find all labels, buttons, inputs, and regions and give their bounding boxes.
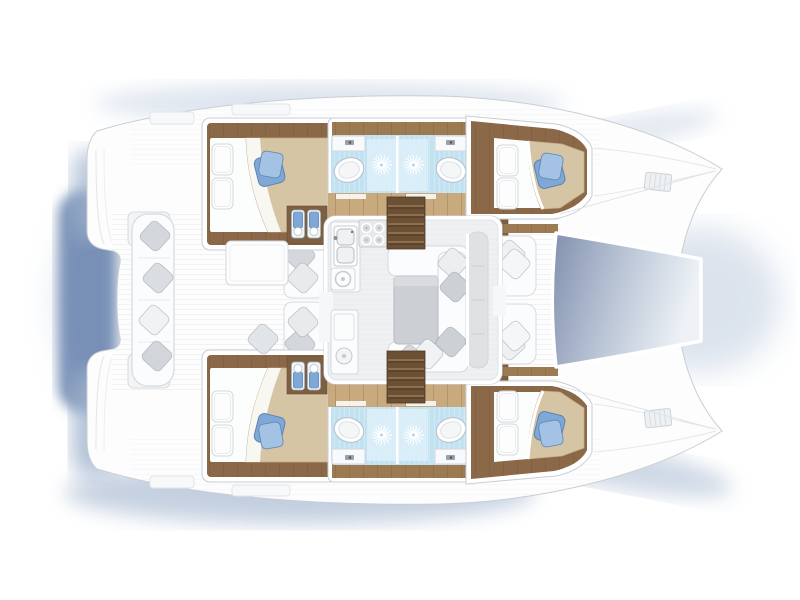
bed-pillow	[497, 145, 518, 176]
bed-pillow	[212, 144, 233, 175]
cockpit-bench	[132, 214, 175, 386]
aft-bathroom-toilets	[287, 206, 327, 244]
double-bed	[494, 138, 584, 209]
bow-trampoline	[552, 233, 701, 367]
floorplan-canvas	[0, 0, 800, 600]
toilet	[292, 210, 305, 238]
salon-forward-door	[493, 286, 506, 316]
bed-pillow	[497, 178, 518, 209]
dinette-table	[394, 276, 438, 344]
galley-sink	[334, 226, 358, 266]
companionway-stairs-port	[387, 197, 425, 249]
forward-console	[466, 232, 488, 368]
catamaran-floorplan: Catamaran yacht floor plan	[0, 0, 800, 600]
fridge-cabinet	[331, 310, 358, 374]
forward-cabin	[466, 116, 592, 219]
companionway-stairs-starboard	[387, 351, 425, 403]
cockpit-table	[226, 241, 288, 285]
toilet	[308, 210, 321, 238]
deck-hatch	[644, 172, 672, 192]
bed-pillow	[212, 178, 233, 209]
oven	[331, 268, 355, 290]
stove	[359, 220, 387, 247]
